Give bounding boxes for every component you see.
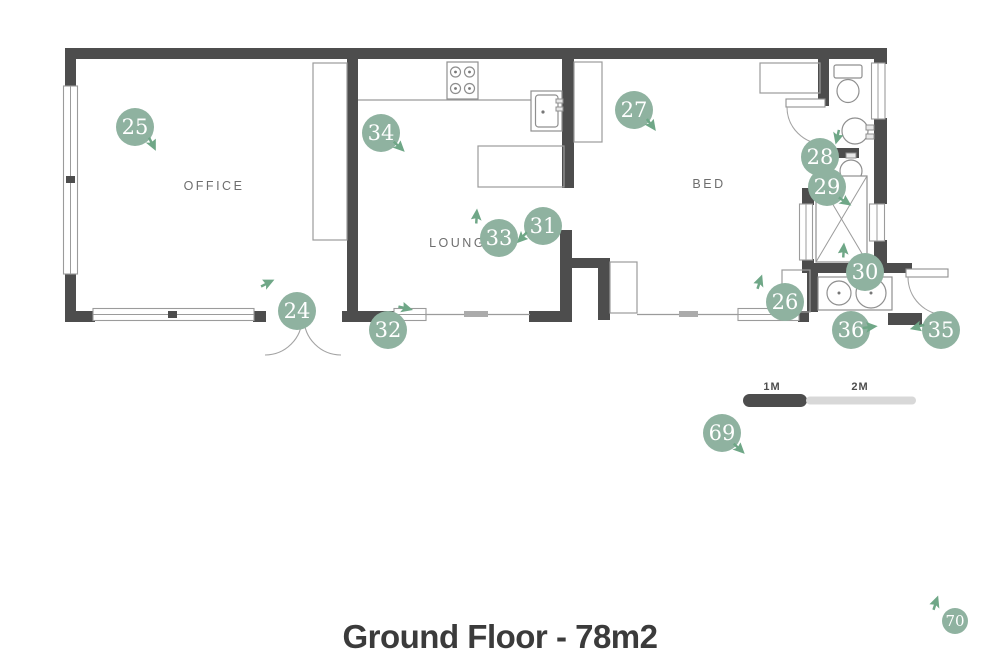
hotspot-arrow-icon	[261, 278, 276, 292]
hotspot-marker-30[interactable]: 30	[846, 253, 884, 291]
hotspot-marker-32[interactable]: 32	[369, 311, 407, 349]
hotspot-marker-25[interactable]: 25	[116, 108, 154, 146]
floorplan-page: OFFICE LOUNGE BED 1M 2M 2425262728293031…	[0, 0, 1000, 667]
hotspot-marker-29[interactable]: 29	[808, 168, 846, 206]
hotspot-marker-31[interactable]: 31	[524, 207, 562, 245]
hotspot-marker-24[interactable]: 24	[278, 292, 316, 330]
hotspot-marker-34[interactable]: 34	[362, 114, 400, 152]
hotspot-marker-69[interactable]: 69	[703, 414, 741, 452]
hotspot-marker-35[interactable]: 35	[922, 311, 960, 349]
hotspot-marker-36[interactable]: 36	[832, 311, 870, 349]
hotspot-arrow-icon	[927, 593, 948, 614]
hotspot-marker-33[interactable]: 33	[480, 219, 518, 257]
floor-title: Ground Floor - 78m2	[0, 618, 1000, 656]
hotspot-arrow-icon	[751, 272, 772, 293]
hotspot-marker-26[interactable]: 26	[766, 283, 804, 321]
markers-layer: 242526272829303132333435366970	[0, 0, 1000, 667]
hotspot-marker-27[interactable]: 27	[615, 91, 653, 129]
